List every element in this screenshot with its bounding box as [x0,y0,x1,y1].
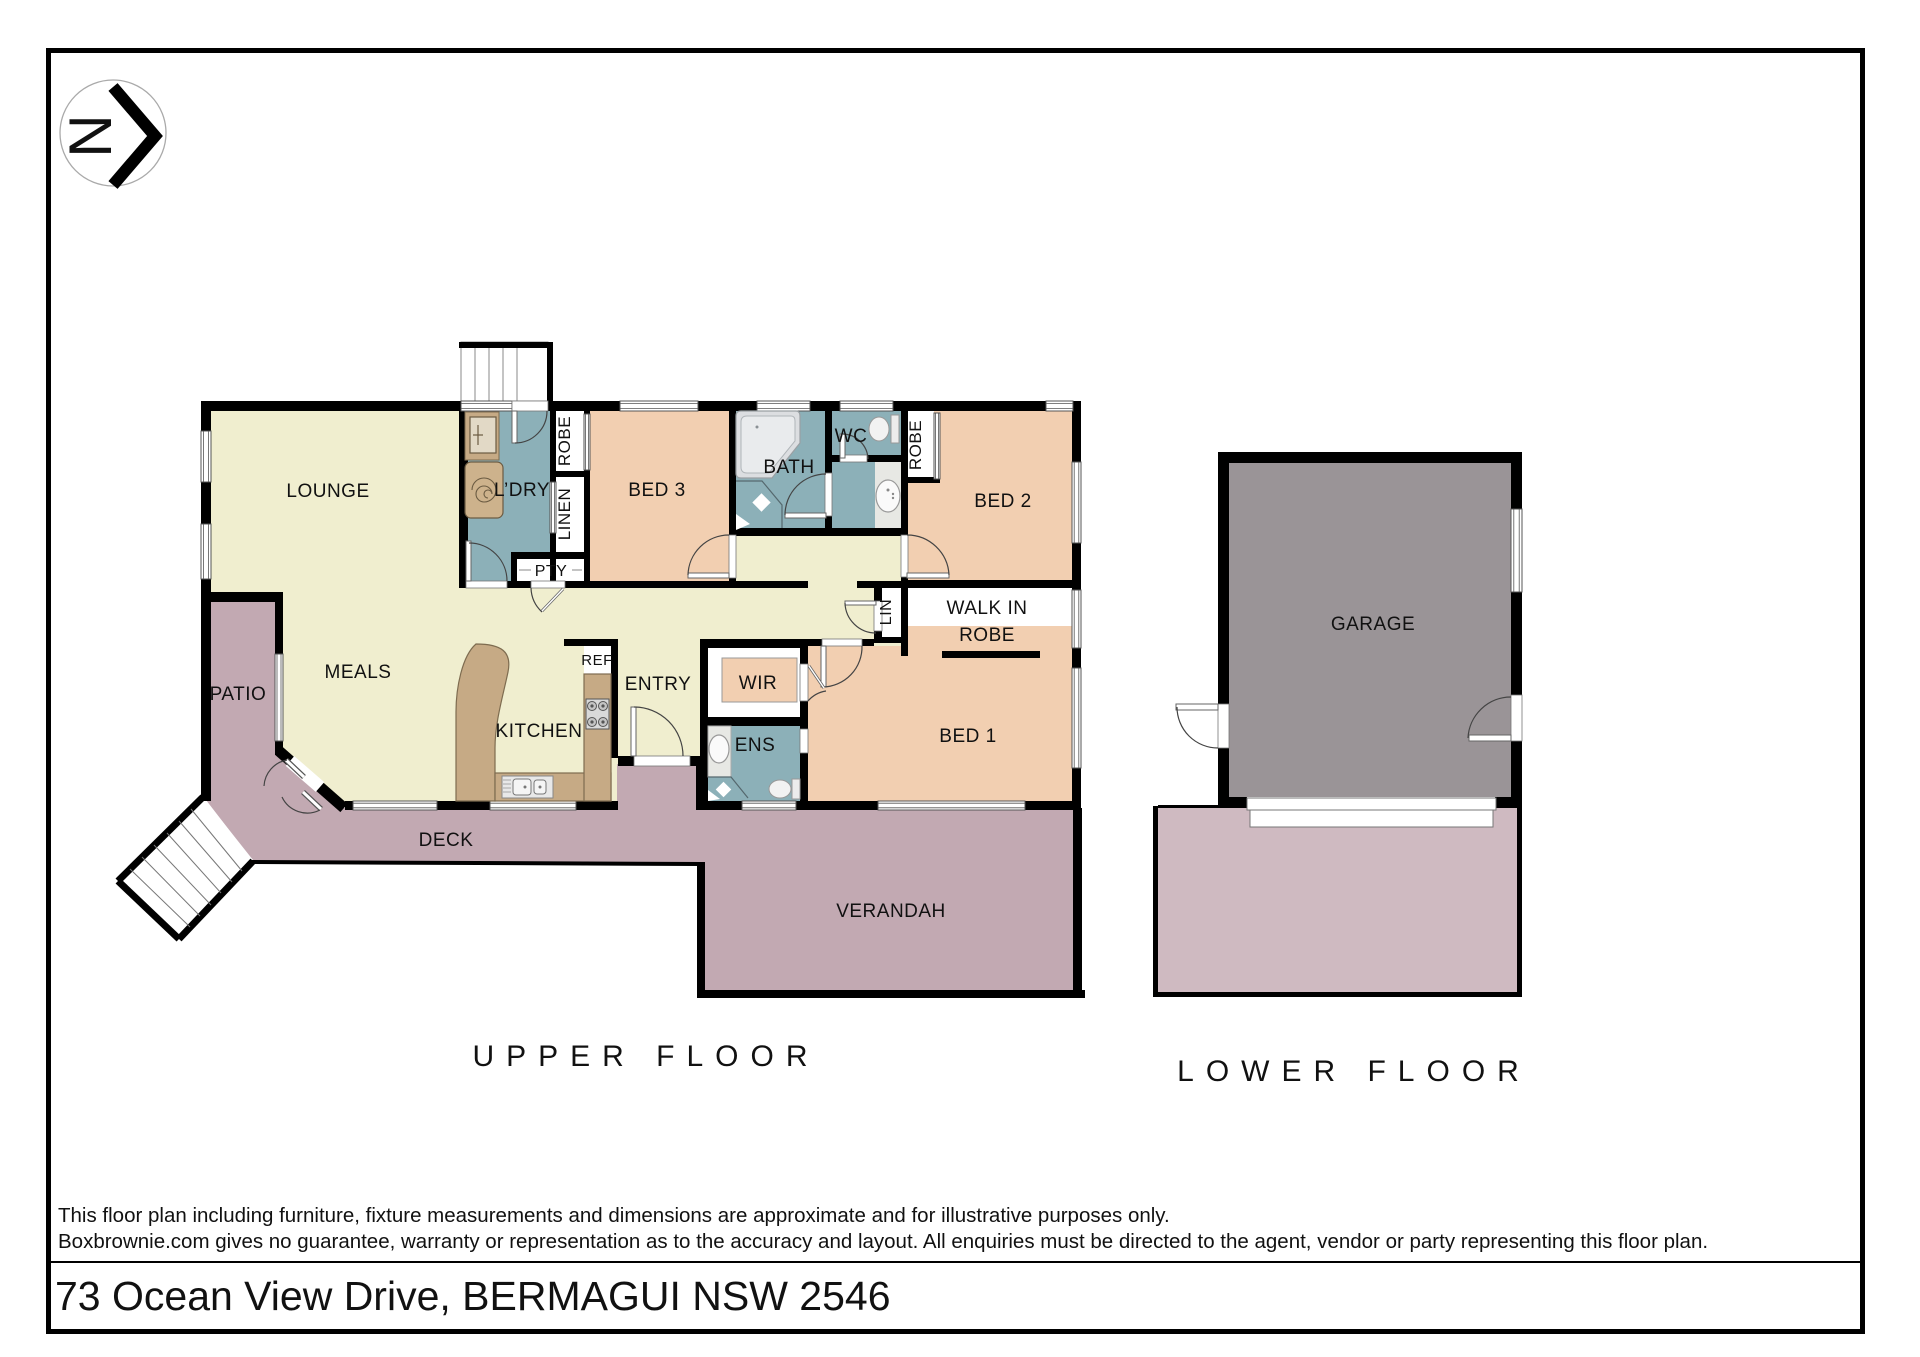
svg-text:REF: REF [581,652,613,669]
svg-text:BED 2: BED 2 [974,491,1031,512]
svg-text:WALK IN: WALK IN [947,598,1028,619]
svg-text:DECK: DECK [419,830,474,851]
svg-text:BED 1: BED 1 [939,726,996,747]
svg-text:ROBE: ROBE [959,625,1015,646]
svg-text:GARAGE: GARAGE [1331,614,1415,635]
svg-text:PTY: PTY [535,563,568,580]
svg-text:MEALS: MEALS [325,662,392,683]
svg-text:ROBE: ROBE [906,420,925,470]
svg-text:KITCHEN: KITCHEN [496,721,583,742]
svg-text:LOWER FLOOR: LOWER FLOOR [1177,1055,1531,1088]
svg-text:UPPER FLOOR: UPPER FLOOR [472,1040,819,1073]
svg-text:BATH: BATH [763,457,814,478]
svg-text:WIR: WIR [739,673,777,694]
svg-text:This floor plan including furn: This floor plan including furniture, fix… [58,1204,1170,1227]
svg-text:LIN: LIN [878,599,895,625]
svg-text:ENS: ENS [735,735,776,756]
svg-text:73 Ocean View Drive, BERMAGUI: 73 Ocean View Drive, BERMAGUI NSW 2546 [55,1273,891,1319]
svg-text:LOUNGE: LOUNGE [286,481,369,502]
svg-text:L’DRY: L’DRY [494,480,550,501]
svg-text:PATIO: PATIO [210,684,267,705]
svg-text:ROBE: ROBE [555,416,574,466]
svg-text:ENTRY: ENTRY [625,674,692,695]
svg-text:VERANDAH: VERANDAH [836,901,946,922]
svg-text:Boxbrownie.com gives no guaran: Boxbrownie.com gives no guarantee, warra… [58,1230,1708,1253]
svg-text:N: N [57,114,124,157]
svg-text:WC: WC [835,426,868,447]
svg-text:BED 3: BED 3 [628,480,685,501]
svg-text:LINEN: LINEN [555,488,574,541]
